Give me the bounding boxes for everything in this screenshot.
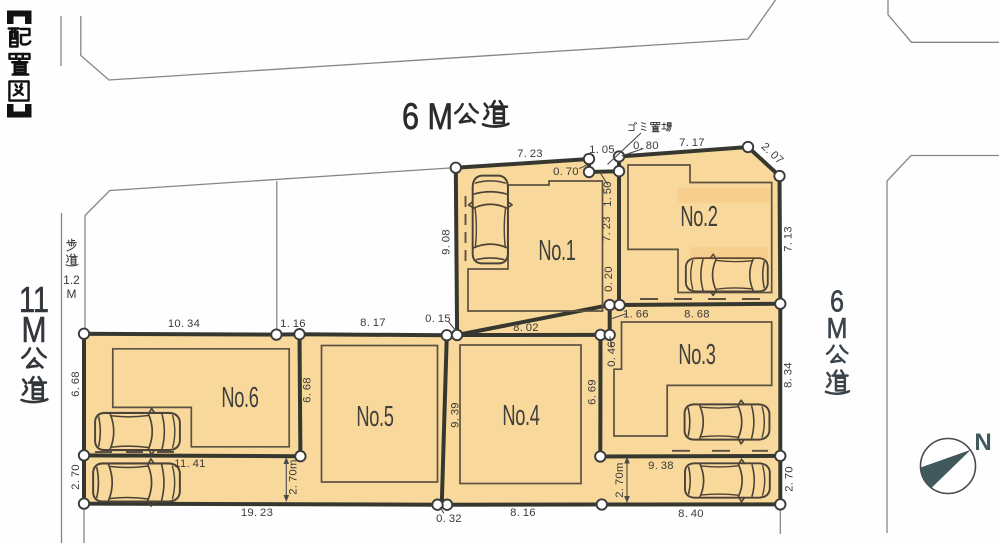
svg-text:2. 70: 2. 70 xyxy=(784,466,796,492)
svg-text:M: M xyxy=(22,309,47,350)
svg-text:10. 34: 10. 34 xyxy=(168,318,200,330)
svg-text:2. 70m: 2. 70m xyxy=(288,459,300,494)
svg-text:No.6: No.6 xyxy=(221,382,258,414)
svg-text:9. 08: 9. 08 xyxy=(441,229,453,255)
svg-text:19. 23: 19. 23 xyxy=(241,507,273,519)
svg-text:0. 70: 0. 70 xyxy=(553,166,579,178)
svg-text:M: M xyxy=(827,313,848,345)
svg-text:8. 17: 8. 17 xyxy=(360,317,386,329)
svg-text:8. 68: 8. 68 xyxy=(684,309,710,321)
svg-text:2. 70: 2. 70 xyxy=(70,464,82,490)
svg-text:7. 17: 7. 17 xyxy=(679,137,705,149)
svg-text:M: M xyxy=(67,287,77,301)
svg-text:6. 69: 6. 69 xyxy=(587,379,599,405)
svg-text:No.5: No.5 xyxy=(356,401,393,433)
svg-text:0. 46: 0. 46 xyxy=(606,341,618,367)
svg-text:2. 70m: 2. 70m xyxy=(614,462,626,497)
svg-text:8. 02: 8. 02 xyxy=(513,322,539,334)
svg-text:7. 23: 7. 23 xyxy=(517,148,543,160)
svg-text:No.2: No.2 xyxy=(680,201,717,233)
svg-text:8. 34: 8. 34 xyxy=(783,362,795,388)
svg-text:8. 16: 8. 16 xyxy=(510,507,536,519)
svg-text:0. 32: 0. 32 xyxy=(436,513,462,525)
svg-text:11. 41: 11. 41 xyxy=(174,458,206,470)
svg-text:6. 68: 6. 68 xyxy=(70,371,82,397)
svg-text:1. 05: 1. 05 xyxy=(589,144,615,156)
svg-text:7. 13: 7. 13 xyxy=(783,226,795,252)
svg-text:0. 20: 0. 20 xyxy=(603,266,615,292)
svg-text:7. 23: 7. 23 xyxy=(601,216,613,242)
svg-text:1. 50: 1. 50 xyxy=(602,181,614,207)
svg-text:0. 15: 0. 15 xyxy=(425,313,451,325)
svg-text:N: N xyxy=(974,429,991,456)
svg-text:No.1: No.1 xyxy=(538,235,575,267)
svg-text:No.4: No.4 xyxy=(502,400,539,432)
svg-text:1.2: 1.2 xyxy=(63,273,80,287)
svg-text:0. 80: 0. 80 xyxy=(633,140,659,152)
svg-text:9. 38: 9. 38 xyxy=(648,460,674,472)
svg-text:No.3: No.3 xyxy=(678,339,715,371)
svg-text:1. 16: 1. 16 xyxy=(280,318,306,330)
svg-text:9. 39: 9. 39 xyxy=(450,402,462,428)
svg-text:6. 68: 6. 68 xyxy=(302,377,314,403)
svg-text:6 M: 6 M xyxy=(402,96,453,137)
svg-text:8. 40: 8. 40 xyxy=(678,508,704,520)
svg-text:1. 66: 1. 66 xyxy=(623,309,649,321)
